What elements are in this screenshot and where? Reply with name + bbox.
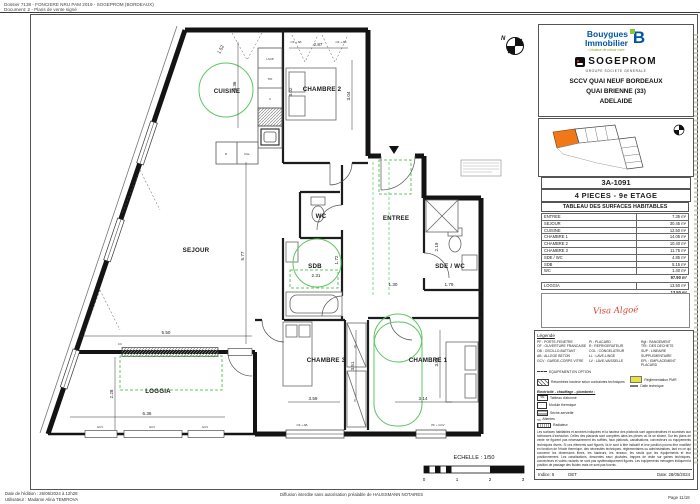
svg-text:CHAMBRE 3: CHAMBRE 3 [307, 357, 346, 364]
attentes-symbol-icon: ≈≈ [537, 417, 540, 422]
svg-text:TRI: TRI [268, 77, 273, 81]
svg-text:ECHELLE : 1/50: ECHELLE : 1/50 [453, 455, 494, 461]
table-total-row: 97.90 m² [541, 275, 689, 281]
bouygues-tagline: Créateur de mieux vivre [585, 48, 628, 52]
svg-text:GCV: GCV [149, 425, 155, 429]
header-divider [0, 12, 700, 14]
kitchen-counters [216, 48, 282, 164]
svg-text:0: 0 [423, 477, 426, 482]
table-row: WC1.40 m² [541, 268, 689, 275]
svg-text:R: R [225, 152, 227, 156]
svg-text:3.59: 3.59 [309, 396, 318, 401]
project-company: SCCV QUAI NEUF BORDEAUX [539, 77, 693, 87]
svg-text:PF + GCV: PF + GCV [431, 423, 444, 427]
plan-de-vente-page: { "meta": { "header_line1": "Dossier 713… [0, 0, 700, 504]
legend-option-line: EQUIPEMENT EN OPTION [537, 370, 691, 374]
legend-hatch-item: Retombées hauteur selon contraintes tech… [537, 376, 626, 388]
indice-value: DET [568, 472, 577, 477]
footer-user: Utilisateur : Madame Alina TEMIROVA [5, 497, 78, 502]
hatch-symbol-icon [537, 379, 549, 386]
key-plan-box [538, 118, 694, 177]
svg-text:ENTREE: ENTREE [383, 215, 409, 222]
footer-edition-date: Date de l'édition : 26/06/2024 à 12h28 [5, 491, 78, 496]
revision-strip: Indice: 5 DET Date: 28/05/2024 [536, 469, 692, 478]
svg-text:Pl.: Pl. [353, 398, 357, 402]
dalle-symbol-icon [630, 385, 638, 388]
svg-text:3: 3 [522, 477, 525, 482]
svg-text:2.28: 2.28 [109, 389, 114, 398]
furniture [283, 68, 478, 427]
legend-tal-item: TAL Tableau d'abonné [537, 395, 691, 402]
legend-col2: Pl : PLACARDR : REFRIGERATEURCGL : CONGE… [589, 340, 639, 369]
dashed-line-icon [537, 371, 547, 372]
indice-label: Indice: 5 [538, 472, 554, 477]
svg-text:CGL: CGL [244, 152, 250, 156]
table-row: CHAMBRE 311.75 m² [541, 248, 689, 255]
svg-text:C: C [269, 97, 271, 101]
fixture-labels: LSUP TRI C R CGL Pl. Pl. GCV GCV GCV CC … [97, 40, 445, 429]
plan-number: 3A-1091 [541, 177, 691, 189]
module-symbol-icon: ··· [537, 402, 547, 409]
svg-text:1.52: 1.52 [216, 44, 225, 55]
scale-bar: ECHELLE : 1/50 0 1 2 3 [423, 455, 525, 482]
table-loggia-row: LOGGIA13.50 m² [541, 282, 689, 290]
svg-text:5.50: 5.50 [162, 330, 171, 335]
entrance-arrow [389, 146, 399, 154]
key-plan-thumbnail [539, 119, 691, 174]
tal-symbol-icon: TAL [537, 395, 548, 402]
developer-logo-box: Bouygues Immobilier Créateur de mieux vi… [538, 24, 694, 117]
svg-text:GCV: GCV [202, 425, 208, 429]
svg-text:SDE / WC: SDE / WC [435, 263, 465, 270]
legend-attentes-item: ≈≈ Attentes [537, 417, 691, 422]
table-row: CUISINE12.50 m² [541, 228, 689, 235]
visa-text: Visa Algoé [593, 305, 639, 317]
plan-note-box [461, 160, 501, 176]
visa-stamp-box: Visa Algoé [541, 293, 690, 328]
svg-text:LSUP: LSUP [266, 57, 274, 61]
legend-pmr-item: Réglementation PMR Dalle technique [630, 375, 676, 388]
svg-text:1.72: 1.72 [334, 255, 339, 264]
svg-text:OF + AB: OF + AB [296, 423, 307, 427]
legend-radiateur-item: Radiateur [537, 423, 691, 429]
bouygues-b-icon: B [631, 30, 647, 46]
bouygues-logo: Bouygues Immobilier Créateur de mieux vi… [539, 30, 693, 52]
svg-text:2: 2 [489, 477, 492, 482]
sogeprom-name: SOGEPROM [588, 56, 657, 67]
svg-text:WC: WC [316, 213, 327, 220]
svg-text:5.77: 5.77 [240, 251, 245, 260]
seche-symbol-icon [537, 410, 548, 416]
svg-text:6.36: 6.36 [143, 411, 152, 416]
pmr-symbol-icon [630, 376, 642, 383]
svg-text:3.02: 3.02 [288, 87, 293, 96]
surface-table-title: TABLEAU DES SURFACES HABITABLES [541, 202, 689, 212]
legend-title: Légende [537, 333, 691, 338]
svg-text:GCV: GCV [97, 425, 103, 429]
svg-text:N: N [501, 36, 506, 42]
legend-col3: Rgt : RANGEMENTTRI : DES DECHETSSUP : LI… [641, 340, 691, 369]
footer-page-number: Page 11/18 [668, 495, 690, 500]
sogeprom-logo: SOGEPROM [539, 56, 693, 67]
plan-type: 4 PIECES - 9e ETAGE [541, 189, 691, 202]
table-row: SEJOUR30.45 m² [541, 221, 689, 228]
svg-text:1.79: 1.79 [445, 282, 454, 287]
svg-text:CUISINE: CUISINE [214, 88, 241, 95]
sogeprom-subtitle: GROUPE SOCIETE GENERALE [539, 69, 693, 73]
legend-seche-item: Sèche-serviette [537, 410, 691, 416]
svg-text:Pl.: Pl. [353, 344, 357, 348]
svg-text:2.19: 2.19 [434, 242, 439, 251]
svg-text:OF + AB: OF + AB [290, 40, 301, 44]
legend-col1: PF : PORTE-FENETREOF : OUVERTURE FRANCAI… [537, 340, 587, 369]
svg-text:2.31: 2.31 [312, 273, 321, 278]
radiateur-symbol-icon [537, 423, 551, 429]
svg-text:1.30: 1.30 [389, 282, 398, 287]
bouygues-name-line2: Immobilier [585, 38, 628, 48]
svg-text:2.87: 2.87 [314, 42, 323, 47]
surface-table: TABLEAU DES SURFACES HABITABLES ENTREE7.… [541, 202, 689, 296]
table-row: CHAMBRE 114.05 m² [541, 234, 689, 241]
svg-text:3.14: 3.14 [419, 396, 428, 401]
floor-plan: 1.52 3.36 2.87 3.02 3.04 5.77 5.50 2.28 … [30, 14, 530, 488]
sogeprom-square-icon [575, 57, 585, 67]
project-building: ADELAIDE [539, 97, 693, 107]
svg-text:OF + AB: OF + AB [335, 40, 346, 44]
legend-box: Légende PF : PORTE-FENETREOF : OUVERTURE… [534, 330, 694, 480]
svg-text:SEJOUR: SEJOUR [183, 247, 210, 254]
table-row: SDB5.15 m² [541, 262, 689, 269]
table-row: ENTREE7.35 m² [541, 213, 689, 221]
svg-text:3.04: 3.04 [346, 91, 351, 100]
svg-text:CHAMBRE 2: CHAMBRE 2 [303, 86, 342, 93]
svg-text:1: 1 [456, 477, 459, 482]
svg-text:3.51: 3.51 [350, 361, 355, 370]
table-row: SDE / WC4.85 m² [541, 255, 689, 262]
date-label: Date: 28/05/2024 [657, 472, 690, 477]
svg-text:CC: CC [118, 342, 122, 346]
legend-electric-title: Electricité - chauffage - plomberie : [537, 390, 691, 394]
legend-module-item: ··· Module thermique [537, 402, 691, 409]
margin-note-strip [694, 34, 698, 464]
legend-disclaimer: Les surfaces habitables et annexes indiq… [537, 430, 691, 467]
footer-diffusion-notice: Diffusion interdite sans autorisation pr… [280, 492, 423, 497]
svg-text:CHAMBRE 1: CHAMBRE 1 [409, 357, 448, 364]
table-row: CHAMBRE 210.40 m² [541, 241, 689, 248]
project-address: QUAI BRIENNE (33) [539, 87, 693, 97]
north-compass-icon: N [501, 36, 524, 55]
svg-text:LOGGIA: LOGGIA [145, 388, 171, 395]
svg-text:SDB: SDB [308, 263, 322, 270]
